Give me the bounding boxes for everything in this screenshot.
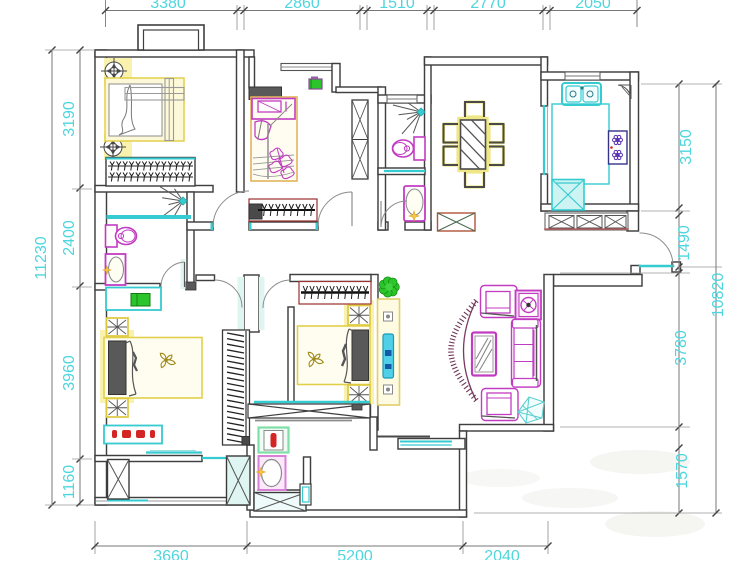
svg-text:3660: 3660: [153, 548, 189, 560]
svg-text:2770: 2770: [470, 0, 506, 12]
svg-text:1160: 1160: [61, 465, 78, 500]
svg-text:2040: 2040: [484, 548, 520, 560]
svg-text:1570: 1570: [674, 453, 691, 489]
svg-text:1490: 1490: [676, 225, 693, 261]
svg-text:2050: 2050: [575, 0, 611, 12]
svg-text:11230: 11230: [33, 236, 50, 279]
svg-text:3150: 3150: [678, 129, 695, 165]
svg-text:3780: 3780: [673, 330, 690, 366]
svg-text:3380: 3380: [150, 0, 186, 12]
svg-text:5200: 5200: [337, 548, 373, 560]
svg-text:3190: 3190: [61, 101, 78, 137]
svg-text:3960: 3960: [61, 355, 78, 391]
svg-text:2860: 2860: [284, 0, 320, 12]
svg-text:2400: 2400: [61, 220, 78, 256]
svg-text:10820: 10820: [710, 273, 727, 318]
svg-text:1510: 1510: [379, 0, 415, 12]
